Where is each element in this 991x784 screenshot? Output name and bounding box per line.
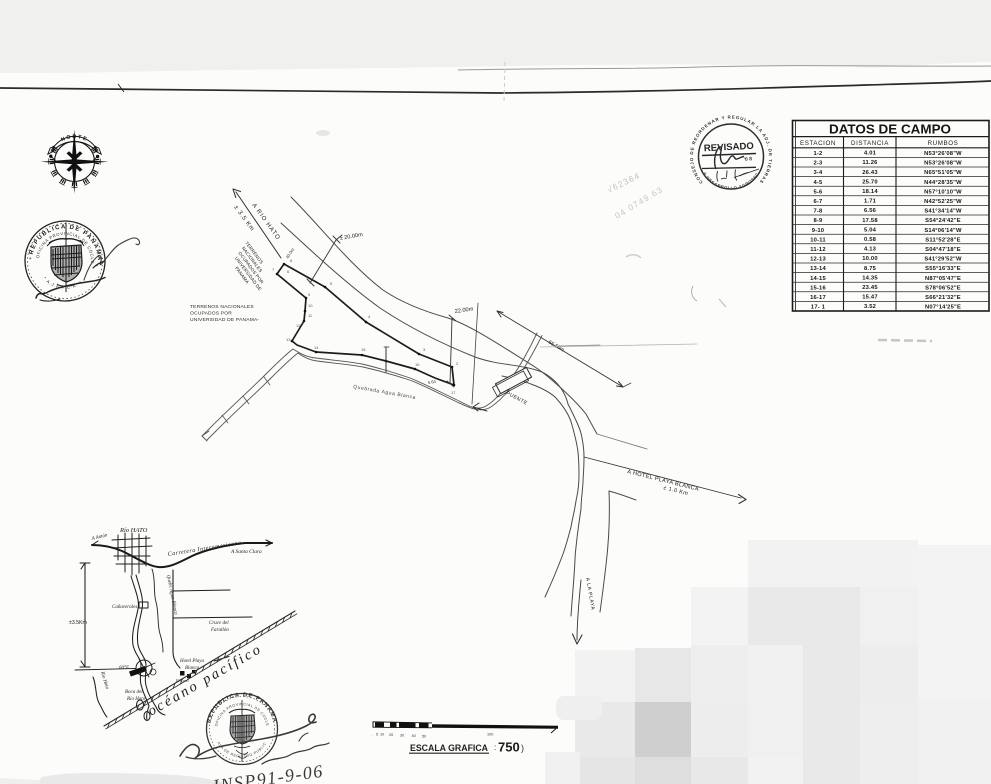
svg-text:.: . — [372, 733, 373, 737]
svg-text:N53°26'08"W: N53°26'08"W — [924, 151, 962, 157]
svg-text:UNIVERSIDAD DE PANAMA-: UNIVERSIDAD DE PANAMA- — [190, 317, 259, 323]
svg-text:17.58: 17.58 — [862, 218, 878, 224]
svg-text:9-10: 9-10 — [812, 228, 824, 234]
svg-text:15-16: 15-16 — [810, 285, 826, 291]
svg-text:26.43: 26.43 — [862, 170, 878, 176]
svg-text:Cruce del: Cruce del — [209, 621, 229, 626]
svg-text:2-3: 2-3 — [814, 161, 824, 167]
svg-text:1-2: 1-2 — [814, 151, 823, 157]
svg-text:S41°29'52"W: S41°29'52"W — [924, 257, 962, 263]
svg-text:12: 12 — [296, 323, 301, 328]
svg-text:S55°16'33"E: S55°16'33"E — [925, 266, 961, 272]
svg-text:DISTANCIA: DISTANCIA — [851, 140, 889, 147]
svg-text:18.14: 18.14 — [862, 189, 878, 195]
svg-text:A Santa Clara: A Santa Clara — [230, 549, 262, 555]
svg-text:0.58: 0.58 — [864, 237, 877, 243]
svg-text:14.35: 14.35 — [862, 275, 878, 281]
svg-text:4.01: 4.01 — [864, 151, 877, 157]
svg-text:12-13: 12-13 — [810, 257, 826, 263]
svg-text:5-6: 5-6 — [814, 189, 824, 195]
svg-text:S78°06'52"E: S78°06'52"E — [925, 285, 961, 291]
svg-text:13-14: 13-14 — [810, 266, 826, 272]
svg-text:N57°10'10"W: N57°10'10"W — [924, 189, 962, 195]
svg-text:N42°52'25"W: N42°52'25"W — [924, 199, 962, 205]
svg-text:): ) — [521, 743, 524, 753]
svg-text:TERRENOS NACIONALES: TERRENOS NACIONALES — [190, 304, 254, 310]
svg-text:4-5: 4-5 — [814, 180, 824, 186]
svg-text:30: 30 — [400, 734, 404, 738]
svg-text:Río Hato: Río Hato — [126, 697, 146, 702]
svg-text:ESCALA GRAFICA: ESCALA GRAFICA — [410, 743, 488, 753]
svg-text:N65°51'05"W: N65°51'05"W — [924, 170, 962, 176]
svg-text:DATOS DE CAMPO: DATOS DE CAMPO — [829, 123, 951, 137]
svg-text:S66°21'32"E: S66°21'32"E — [925, 295, 961, 301]
svg-text:S41°34'14"W: S41°34'14"W — [924, 209, 962, 215]
svg-text:'0 8: '0 8 — [744, 156, 753, 163]
svg-text:23.45: 23.45 — [862, 285, 878, 291]
svg-text:10-11: 10-11 — [810, 237, 826, 243]
svg-text:8-9: 8-9 — [814, 218, 824, 224]
svg-text:100: 100 — [487, 733, 493, 737]
svg-text:16-17: 16-17 — [810, 295, 826, 301]
svg-text:10.00: 10.00 — [862, 256, 878, 262]
svg-text:S14°06'14"W: S14°06'14"W — [924, 228, 962, 234]
svg-text:60°E: 60°E — [119, 666, 129, 671]
svg-text:4.13: 4.13 — [864, 247, 877, 253]
svg-text:40: 40 — [412, 734, 416, 738]
svg-text:750: 750 — [498, 740, 520, 755]
svg-text:RUMBOS: RUMBOS — [928, 140, 959, 147]
svg-text:N44°28'35"W: N44°28'35"W — [924, 180, 962, 186]
svg-text:10: 10 — [380, 733, 384, 737]
svg-text:OCUPADOS POR: OCUPADOS POR — [190, 311, 232, 317]
svg-text:25.70: 25.70 — [862, 179, 878, 185]
svg-text:8.75: 8.75 — [864, 266, 877, 272]
svg-text:14: 14 — [314, 345, 319, 350]
svg-text:15.47: 15.47 — [862, 295, 878, 301]
svg-text:6-7: 6-7 — [814, 199, 823, 205]
svg-text:S04°47'18"E: S04°47'18"E — [925, 247, 961, 253]
svg-text:16: 16 — [415, 362, 420, 367]
svg-text:50: 50 — [422, 735, 426, 739]
svg-text:S54°24'42"E: S54°24'42"E — [925, 218, 961, 224]
svg-text:ESTACION: ESTACION — [800, 140, 836, 147]
svg-text:11-12: 11-12 — [810, 247, 826, 253]
svg-text:17: 17 — [451, 390, 456, 395]
svg-text:3-4: 3-4 — [814, 170, 824, 176]
svg-text:13: 13 — [286, 337, 291, 342]
svg-text:Río HATO: Río HATO — [119, 527, 148, 534]
svg-text:10: 10 — [308, 303, 313, 308]
svg-text:14-15: 14-15 — [810, 276, 826, 282]
svg-text:20: 20 — [389, 733, 393, 737]
svg-text:5: 5 — [376, 733, 378, 737]
svg-text:S11°52'28"E: S11°52'28"E — [925, 237, 960, 243]
svg-text:±3.5Km: ±3.5Km — [69, 620, 87, 626]
svg-text:3.52: 3.52 — [864, 304, 876, 310]
svg-text:Boca del: Boca del — [125, 690, 143, 695]
svg-text::: : — [494, 743, 496, 752]
svg-text:N87°05'47"E: N87°05'47"E — [925, 276, 961, 282]
svg-text:15: 15 — [361, 347, 366, 352]
svg-text:Hotel Playa: Hotel Playa — [179, 659, 205, 664]
svg-text:1.71: 1.71 — [864, 199, 877, 205]
svg-text:Farallón: Farallón — [210, 628, 229, 633]
svg-text:N53°26'08"W: N53°26'08"W — [924, 161, 962, 167]
svg-text:N07°14'25"E: N07°14'25"E — [925, 305, 961, 311]
svg-text:11.26: 11.26 — [862, 160, 878, 166]
svg-text:Cañaverales: Cañaverales — [112, 605, 137, 610]
svg-text:17- 1: 17- 1 — [811, 305, 826, 311]
svg-text:6.56: 6.56 — [864, 208, 877, 214]
svg-text:7-8: 7-8 — [814, 209, 824, 215]
svg-text:5.04: 5.04 — [864, 227, 877, 233]
